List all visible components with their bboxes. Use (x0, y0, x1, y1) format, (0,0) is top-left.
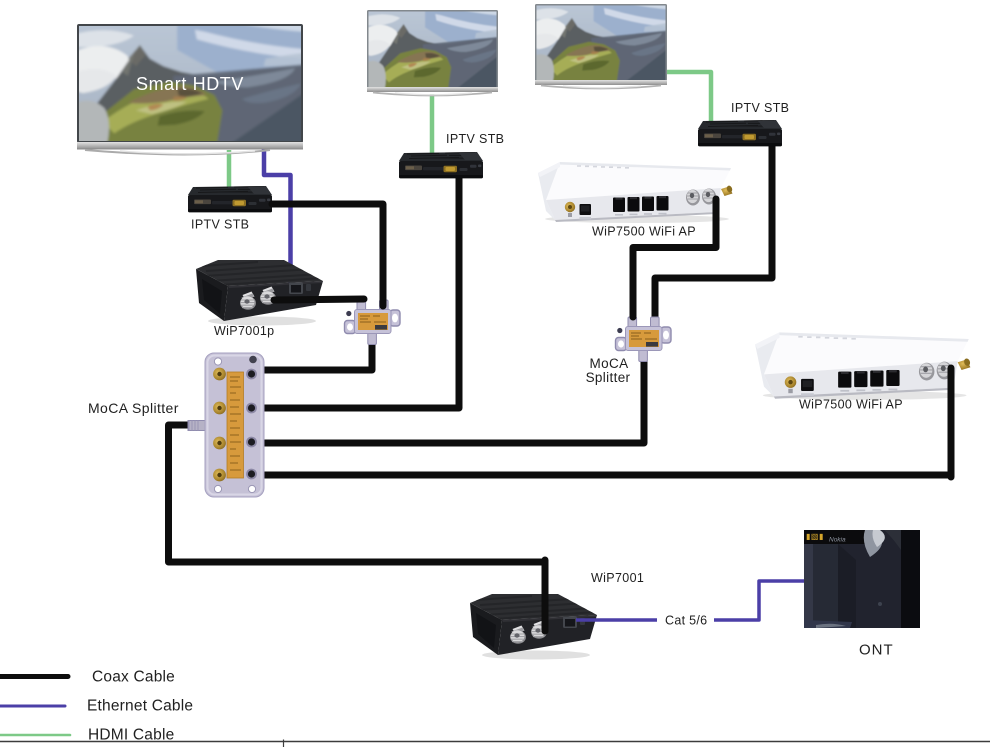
svg-text:Coax Cable: Coax Cable (92, 669, 175, 686)
svg-text:IPTV STB: IPTV STB (731, 101, 789, 115)
svg-text:IPTV STB: IPTV STB (446, 132, 504, 146)
svg-text:MoCA Splitter: MoCA Splitter (88, 400, 179, 416)
svg-text:Cat 5/6: Cat 5/6 (665, 614, 707, 628)
svg-text:Smart HDTV: Smart HDTV (136, 74, 244, 94)
svg-text:WiP7001: WiP7001 (591, 571, 644, 585)
svg-text:ONT: ONT (859, 642, 894, 659)
svg-text:▮▧▮: ▮▧▮ (806, 532, 824, 541)
svg-text:Splitter: Splitter (586, 370, 631, 385)
svg-text:WiP7500 WiFi AP: WiP7500 WiFi AP (799, 398, 903, 412)
svg-text:WiP7001p: WiP7001p (214, 324, 274, 338)
svg-text:MoCA: MoCA (590, 356, 629, 371)
svg-text:Ethernet Cable: Ethernet Cable (87, 698, 193, 715)
svg-text:WiP7500 WiFi AP: WiP7500 WiFi AP (592, 225, 696, 239)
svg-text:Nokia: Nokia (829, 537, 846, 544)
svg-text:IPTV STB: IPTV STB (191, 218, 249, 232)
